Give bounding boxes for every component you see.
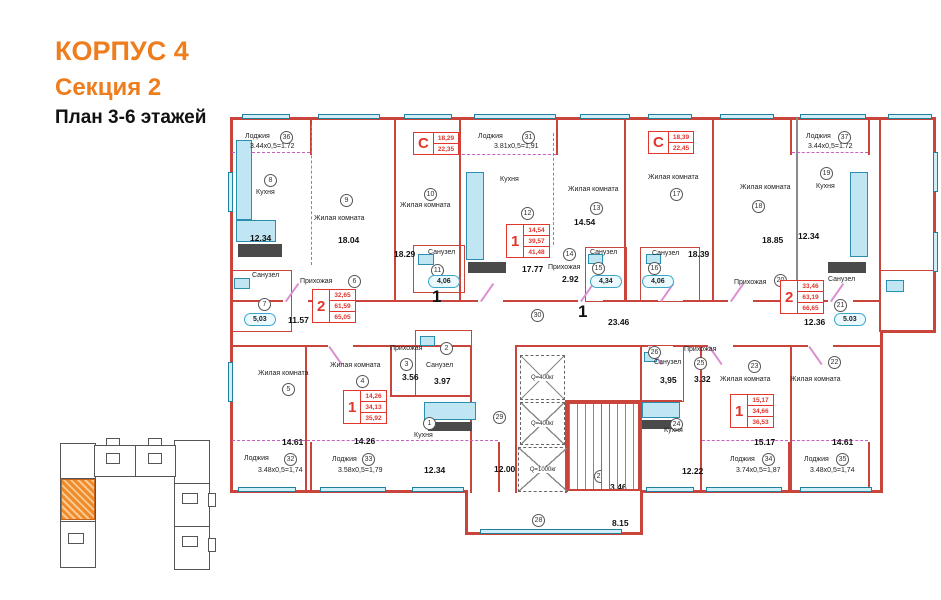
apartment-area-value: 36,53	[748, 416, 772, 427]
room-name: Лоджия	[730, 456, 755, 464]
bathtub-label: 4,34	[590, 275, 622, 288]
wall	[853, 300, 880, 302]
apartment-area-value: 32,65	[330, 290, 354, 300]
room-number: 12	[521, 207, 534, 220]
wall	[868, 117, 870, 155]
room-name: Прихожая	[734, 279, 766, 287]
apartment-area-value: 39,57	[524, 235, 548, 246]
appliance	[238, 244, 282, 257]
room-name: Кухня	[816, 183, 835, 191]
apartment-area-value: 14,54	[524, 225, 548, 235]
apartment-summary-box: 115,1734,6636,53	[730, 394, 774, 428]
window	[720, 114, 774, 119]
wall	[556, 117, 558, 155]
room-name: Лоджия	[806, 133, 831, 141]
room-area: 3.97	[434, 377, 451, 386]
minimap-balcony	[208, 538, 216, 552]
apartment-summary-box: 233,4663,1966,65	[780, 280, 824, 314]
partition-dash-line	[311, 125, 312, 265]
wall	[712, 117, 714, 302]
minimap-balcony	[208, 493, 216, 507]
room-number: 18	[752, 200, 765, 213]
room-area: 12.34	[250, 234, 271, 243]
room-number: 29	[493, 411, 506, 424]
room-name: Санузел	[590, 249, 617, 257]
room-name: Санузел	[428, 249, 455, 257]
window	[800, 114, 866, 119]
apartment-area-value: 33,46	[798, 281, 822, 291]
door-leaf	[480, 283, 494, 302]
building-title: КОРПУС 4	[55, 36, 189, 67]
elevator-1: Q=400кг	[520, 355, 565, 400]
plan-title: План 3-6 этажей	[55, 107, 206, 129]
window	[480, 529, 622, 534]
wall	[833, 345, 880, 347]
minimap-divider	[61, 521, 95, 522]
room-name: Санузел	[252, 272, 279, 280]
wall	[310, 442, 312, 492]
window	[888, 114, 932, 119]
room-number: 30	[531, 309, 544, 322]
apartment-area-value: 14,26	[361, 391, 385, 401]
fixture	[466, 172, 484, 260]
wall	[230, 345, 328, 347]
window	[933, 232, 938, 272]
wall	[868, 442, 870, 492]
elevator-label: Q=1000кг	[529, 467, 557, 473]
room-number: 23	[748, 360, 761, 373]
minimap-core	[182, 536, 198, 547]
apartment-type: С	[414, 133, 433, 154]
room-number: 1	[423, 417, 436, 430]
room-area: 14.61	[832, 438, 853, 447]
window	[800, 487, 872, 492]
apartment-area-value: 18,29	[434, 133, 458, 143]
partition-dash-line	[553, 133, 554, 245]
apartment-values: 14,2634,1335,92	[360, 391, 385, 423]
wall	[465, 490, 468, 535]
apartment-summary-box: С18,3922,45	[648, 131, 694, 154]
room-name: Кухня	[256, 189, 275, 197]
room-area: 12.34	[424, 466, 445, 475]
loggia-dimension: 3.44x0,5=1.72	[250, 143, 295, 151]
room-area: 14.61	[282, 438, 303, 447]
loggia-dash-line	[792, 440, 868, 441]
section-mark: 1	[432, 288, 441, 307]
room-area: 8.15	[612, 519, 629, 528]
apartment-summary-box: С18,2922,35	[413, 132, 459, 155]
apartment-area-value: 35,92	[361, 412, 385, 423]
bathtub-label: 4,06	[428, 275, 460, 288]
room-area: 12.36	[804, 318, 825, 327]
minimap-balcony	[106, 438, 120, 446]
room-area: 12.00	[494, 465, 515, 474]
room-name: Жилая комната	[740, 184, 791, 192]
wall	[733, 345, 808, 347]
window	[933, 152, 938, 192]
room-name: Жилая комната	[568, 186, 619, 194]
staircase-rail	[601, 404, 610, 489]
minimap-balcony	[148, 438, 162, 446]
apartment-area-value: 22,35	[434, 143, 458, 154]
room-area: 17.77	[522, 265, 543, 274]
apartment-area-value: 34,66	[748, 405, 772, 416]
room-name: Санузел	[654, 359, 681, 367]
room-area: 14.26	[354, 437, 375, 446]
apartment-area-value: 66,65	[798, 302, 822, 313]
wall	[503, 300, 578, 302]
minimap-core	[182, 493, 198, 504]
fixture	[236, 140, 252, 220]
loggia-dimension: 3.44x0,5=1.72	[808, 143, 853, 151]
window	[706, 487, 782, 492]
fixture	[886, 280, 904, 292]
loggia-dash-line	[792, 152, 868, 153]
minimap-divider	[135, 446, 136, 476]
fixture	[850, 172, 868, 257]
room-number: 16	[648, 262, 661, 275]
room-name: Жилая комната	[400, 202, 451, 210]
wall	[305, 345, 307, 493]
minimap	[50, 433, 220, 578]
room-name: Прихожая	[300, 278, 332, 286]
room-number: 10	[424, 188, 437, 201]
wall	[394, 117, 396, 302]
loggia-dimension: 3.74x0,5=1,87	[736, 467, 781, 475]
window	[242, 114, 290, 119]
room-number: 22	[828, 356, 841, 369]
minimap-current-section	[61, 479, 95, 520]
room-number: 28	[532, 514, 545, 527]
floor-plan: 36Лоджия3.44x0,5=1.728Кухня12.349Жилая к…	[228, 112, 940, 552]
apartment-values: 32,6561,5965,05	[329, 290, 354, 322]
window	[412, 487, 464, 492]
window	[228, 362, 233, 402]
window	[404, 114, 452, 119]
window	[580, 114, 630, 119]
apartment-values: 14,5439,5741,48	[523, 225, 548, 257]
window	[228, 172, 233, 212]
room-area: 3.32	[694, 375, 711, 384]
apartment-area-value: 22,45	[669, 142, 693, 153]
room-name: Прихожая	[684, 346, 716, 354]
room-name: Кухня	[500, 176, 519, 184]
room-area: 14.54	[574, 218, 595, 227]
room-name: Лоджия	[244, 455, 269, 463]
elevator-2: Q=400кг	[520, 402, 565, 445]
apartment-type: 1	[344, 391, 360, 423]
room-name: Лоджия	[804, 456, 829, 464]
apartment-area-value: 61,59	[330, 300, 354, 311]
room-number: 8	[264, 174, 277, 187]
room-name: Санузел	[828, 276, 855, 284]
room-number: 4	[356, 375, 369, 388]
minimap-core	[106, 453, 120, 464]
apartment-values: 18,2922,35	[433, 133, 458, 154]
room-name: Лоджия	[245, 133, 270, 141]
loggia-dimension: 3.48x0,5=1,74	[810, 467, 855, 475]
fixture	[234, 278, 250, 289]
minimap-divider	[175, 526, 209, 527]
apartment-area-value: 18,39	[669, 132, 693, 142]
apartment-type: 1	[507, 225, 523, 257]
wall	[515, 345, 517, 493]
minimap-core	[148, 453, 162, 464]
apartment-summary-box: 114,2634,1335,92	[343, 390, 387, 424]
apartment-area-value: 15,17	[748, 395, 772, 405]
wall	[880, 330, 883, 493]
appliance	[468, 262, 506, 273]
apartment-type: С	[649, 132, 668, 153]
fixture	[642, 402, 680, 418]
room-number: 19	[820, 167, 833, 180]
room-name: Жилая комната	[330, 362, 381, 370]
room-area: 12.22	[682, 467, 703, 476]
apartment-values: 18,3922,45	[668, 132, 693, 153]
apartment-summary-box: 114,5439,5741,48	[506, 224, 550, 258]
loggia-dimension: 3.58x0,5=1,79	[338, 467, 383, 475]
room-name: Лоджия	[332, 456, 357, 464]
wall	[390, 345, 392, 397]
room-name: Жилая комната	[258, 370, 309, 378]
wall	[790, 345, 792, 493]
room-name: Санузел	[426, 362, 453, 370]
room-number: 13	[590, 202, 603, 215]
room-number: 7	[258, 298, 271, 311]
room-number: 34	[762, 453, 775, 466]
room-number: 33	[362, 453, 375, 466]
wall	[515, 345, 648, 347]
room-number: 21	[834, 299, 847, 312]
room-name: Кухня	[414, 432, 433, 440]
door-leaf	[809, 346, 823, 365]
bathtub-label: 5.03	[834, 313, 866, 326]
elevator-3: Q=1000кг	[518, 447, 568, 492]
room-number: 15	[592, 262, 605, 275]
room-name: Жилая комната	[720, 376, 771, 384]
room-name: Санузел	[652, 250, 679, 258]
room-area: 3.56	[402, 373, 419, 382]
apartment-area-value: 65,05	[330, 311, 354, 322]
room-number: 17	[670, 188, 683, 201]
page: КОРПУС 4 Секция 2 План 3-6 этажей 36Лодж…	[0, 0, 941, 600]
room-area: 2.92	[562, 275, 579, 284]
apartment-type: 2	[781, 281, 797, 313]
room-name: Жилая комната	[790, 376, 841, 384]
room-area: 3,95	[660, 376, 677, 385]
room-number: 3	[400, 358, 413, 371]
room-number: 26	[648, 346, 661, 359]
bathtub-label: 5,03	[244, 313, 276, 326]
room-area: 18.04	[338, 236, 359, 245]
wall	[788, 442, 790, 492]
room-name: Лоджия	[478, 133, 503, 141]
apartment-summary-box: 232,6561,5965,05	[312, 289, 356, 323]
room-number: 2	[440, 342, 453, 355]
apartment-area-value: 41,48	[524, 246, 548, 257]
apartment-values: 15,1734,6636,53	[747, 395, 772, 427]
room-name: Жилая комната	[648, 174, 699, 182]
appliance	[828, 262, 866, 273]
room-number: 25	[694, 357, 707, 370]
apartment-type: 2	[313, 290, 329, 322]
loggia-dimension: 3.48x0,5=1,74	[258, 467, 303, 475]
elevator-label: Q=400кг	[530, 375, 555, 381]
room-name: Прихожая	[548, 264, 580, 272]
minimap-wing-right	[174, 440, 210, 570]
room-area: 12.34	[798, 232, 819, 241]
section-title: Секция 2	[55, 74, 161, 102]
window	[648, 114, 692, 119]
wall	[790, 117, 792, 155]
minimap-core	[68, 533, 84, 544]
window	[320, 487, 386, 492]
apartment-area-value: 34,13	[361, 401, 385, 412]
bathtub-label: 4,06	[642, 275, 674, 288]
room-number: 6	[348, 275, 361, 288]
room-number: 5	[282, 383, 295, 396]
staircase	[567, 402, 640, 491]
room-area: 23.46	[608, 318, 629, 327]
room-area: 18.29	[394, 250, 415, 259]
window	[318, 114, 380, 119]
room-area: 18.39	[688, 250, 709, 259]
window	[646, 487, 694, 492]
loggia-dash-line	[312, 440, 498, 441]
minimap-divider	[175, 483, 209, 484]
window	[474, 114, 556, 119]
apartment-area-value: 63,19	[798, 291, 822, 302]
apartment-values: 33,4663,1966,65	[797, 281, 822, 313]
room-number: 32	[284, 453, 297, 466]
apartment-type: 1	[731, 395, 747, 427]
room-name: Кухня	[664, 427, 683, 435]
room-area: 11.57	[288, 316, 309, 325]
section-mark: 1	[578, 303, 587, 322]
room-number: 35	[836, 453, 849, 466]
room-name: Жилая комната	[314, 215, 365, 223]
room-name: Прихожая	[390, 345, 422, 353]
window	[238, 487, 296, 492]
elevator-label: Q=400кг	[530, 421, 555, 427]
room-number: 14	[563, 248, 576, 261]
loggia-dimension: 3.81x0,5=1,91	[494, 143, 539, 151]
room-number: 9	[340, 194, 353, 207]
room-area: 18.85	[762, 236, 783, 245]
wall	[796, 117, 798, 302]
room-area: 15.17	[754, 438, 775, 447]
wall	[640, 490, 643, 535]
loggia-dash-line	[462, 154, 556, 155]
